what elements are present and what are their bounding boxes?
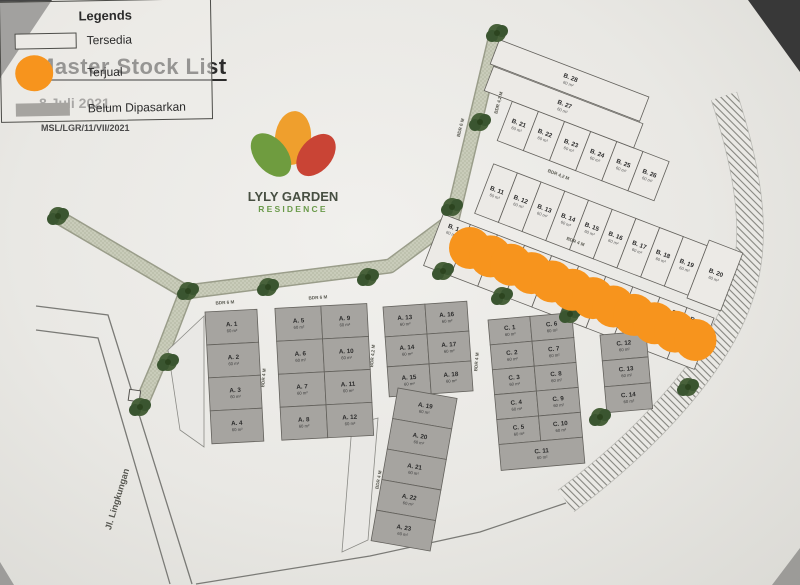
plot-area-label: 60 m² (619, 346, 631, 352)
sold-swatch (15, 55, 54, 92)
corner-shadow-top-right (748, 0, 800, 72)
road-width-label: BDR 6 M (456, 118, 465, 138)
plot-area-label: 60 m² (623, 398, 635, 404)
plot-area-label: 60 m² (343, 388, 355, 394)
document-reference-number: MSL/LGR/11/VII/2021 (41, 123, 130, 133)
plot-area-label: 60 m² (339, 322, 351, 328)
available-swatch (15, 33, 77, 50)
plot-area-label: 60 m² (295, 357, 307, 363)
legend-title: Legends (0, 6, 210, 25)
tree-icon (589, 408, 611, 426)
legend-row-unmarketed: Belum Dipasarkan (16, 93, 212, 122)
plot-area-label: 60 m² (345, 421, 357, 427)
legend-label-unmarketed: Belum Dipasarkan (88, 100, 186, 116)
logo-petals-icon (233, 108, 353, 186)
road-texture-1 (60, 218, 186, 292)
plot-area-label: 60 m² (505, 331, 517, 337)
plot-area-label: 60 m² (341, 355, 353, 361)
plot-area-label: 60 m² (537, 454, 549, 460)
plot-area-label: 60 m² (446, 378, 458, 384)
legend-row-available: Tersedia (14, 25, 210, 54)
plot-area-label: 60 m² (553, 402, 565, 408)
plots-block-a-center: A. 1360 m²A. 1460 m²A. 1560 m²A. 1660 m²… (383, 301, 473, 397)
tree-icon (486, 24, 508, 42)
road-width-label: BDR 4,2 M (369, 344, 376, 367)
road-width-label: BDR 4,2 M (547, 168, 570, 181)
lyly-garden-logo: LYLY GARDEN RESIDENCE (233, 108, 353, 214)
plots-block-c-main: C. 160 m²C. 260 m²C. 360 m²C. 460 m²C. 5… (488, 313, 585, 471)
plot-area-label: 60 m² (227, 328, 239, 334)
plot-area-label: 60 m² (297, 390, 309, 396)
plot-area-label: 60 m² (547, 327, 559, 333)
plots-block-a-strip: A. 1960 m²A. 2060 m²A. 2160 m²A. 2260 m²… (371, 388, 457, 551)
plot-area-label: 60 m² (299, 423, 311, 429)
plot-area-label: 60 m² (513, 431, 525, 437)
plot-area-label: 60 m² (442, 318, 454, 324)
legend-row-sold: Terjual (15, 51, 212, 92)
logo-brand-subtitle: RESIDENCE (233, 204, 353, 214)
plot-area-label: 60 m² (402, 351, 414, 357)
photographed-master-stock-list: Jl. LingkunganB. 160 m²B. 260 m²B. 360 m… (0, 0, 800, 585)
plots-block-c-east: C. 1260 m²C. 1360 m²C. 1460 m² (600, 331, 653, 413)
plot-area-label: 60 m² (404, 381, 416, 387)
road-width-label: BDR 6 M (308, 294, 327, 300)
sold-marker (675, 319, 717, 361)
plot-area-label: 60 m² (511, 406, 523, 412)
road-width-label: BDR 4 M (473, 352, 480, 371)
plot-area-label: 60 m² (293, 324, 305, 330)
legend-box: Legends Tersedia Terjual Belum Dipasarka… (0, 0, 213, 123)
plot-area-label: 60 m² (509, 381, 521, 387)
corner-shadow-bottom-left (0, 562, 14, 585)
plot-area-label: 60 m² (232, 427, 244, 433)
plot-area-label: 60 m² (555, 427, 567, 433)
legend-label-available: Tersedia (87, 33, 133, 48)
plot-area-label: 60 m² (400, 321, 412, 327)
plot-area-label: 60 m² (551, 377, 563, 383)
plot-area-label: 60 m² (549, 352, 561, 358)
plot-area-label: 60 m² (621, 372, 633, 378)
unmarketed-swatch (16, 102, 70, 116)
plots-block-a-west: A. 160 m²A. 260 m²A. 360 m²A. 460 m²A. 5… (205, 304, 374, 444)
logo-brand-name: LYLY GARDEN (233, 189, 353, 204)
corner-shadow-bottom-right (772, 548, 800, 585)
road-width-label: BDR 6 M (215, 299, 234, 305)
plot-area-label: 60 m² (228, 361, 240, 367)
road-name-jl-lingkungan: Jl. Lingkungan (103, 467, 131, 531)
road-width-label: BDR 4 M (260, 368, 267, 387)
plot-area-label: 60 m² (507, 356, 519, 362)
legend-label-sold: Terjual (87, 65, 123, 80)
plot-area-label: 60 m² (230, 394, 242, 400)
plot-area-label: 60 m² (444, 348, 456, 354)
